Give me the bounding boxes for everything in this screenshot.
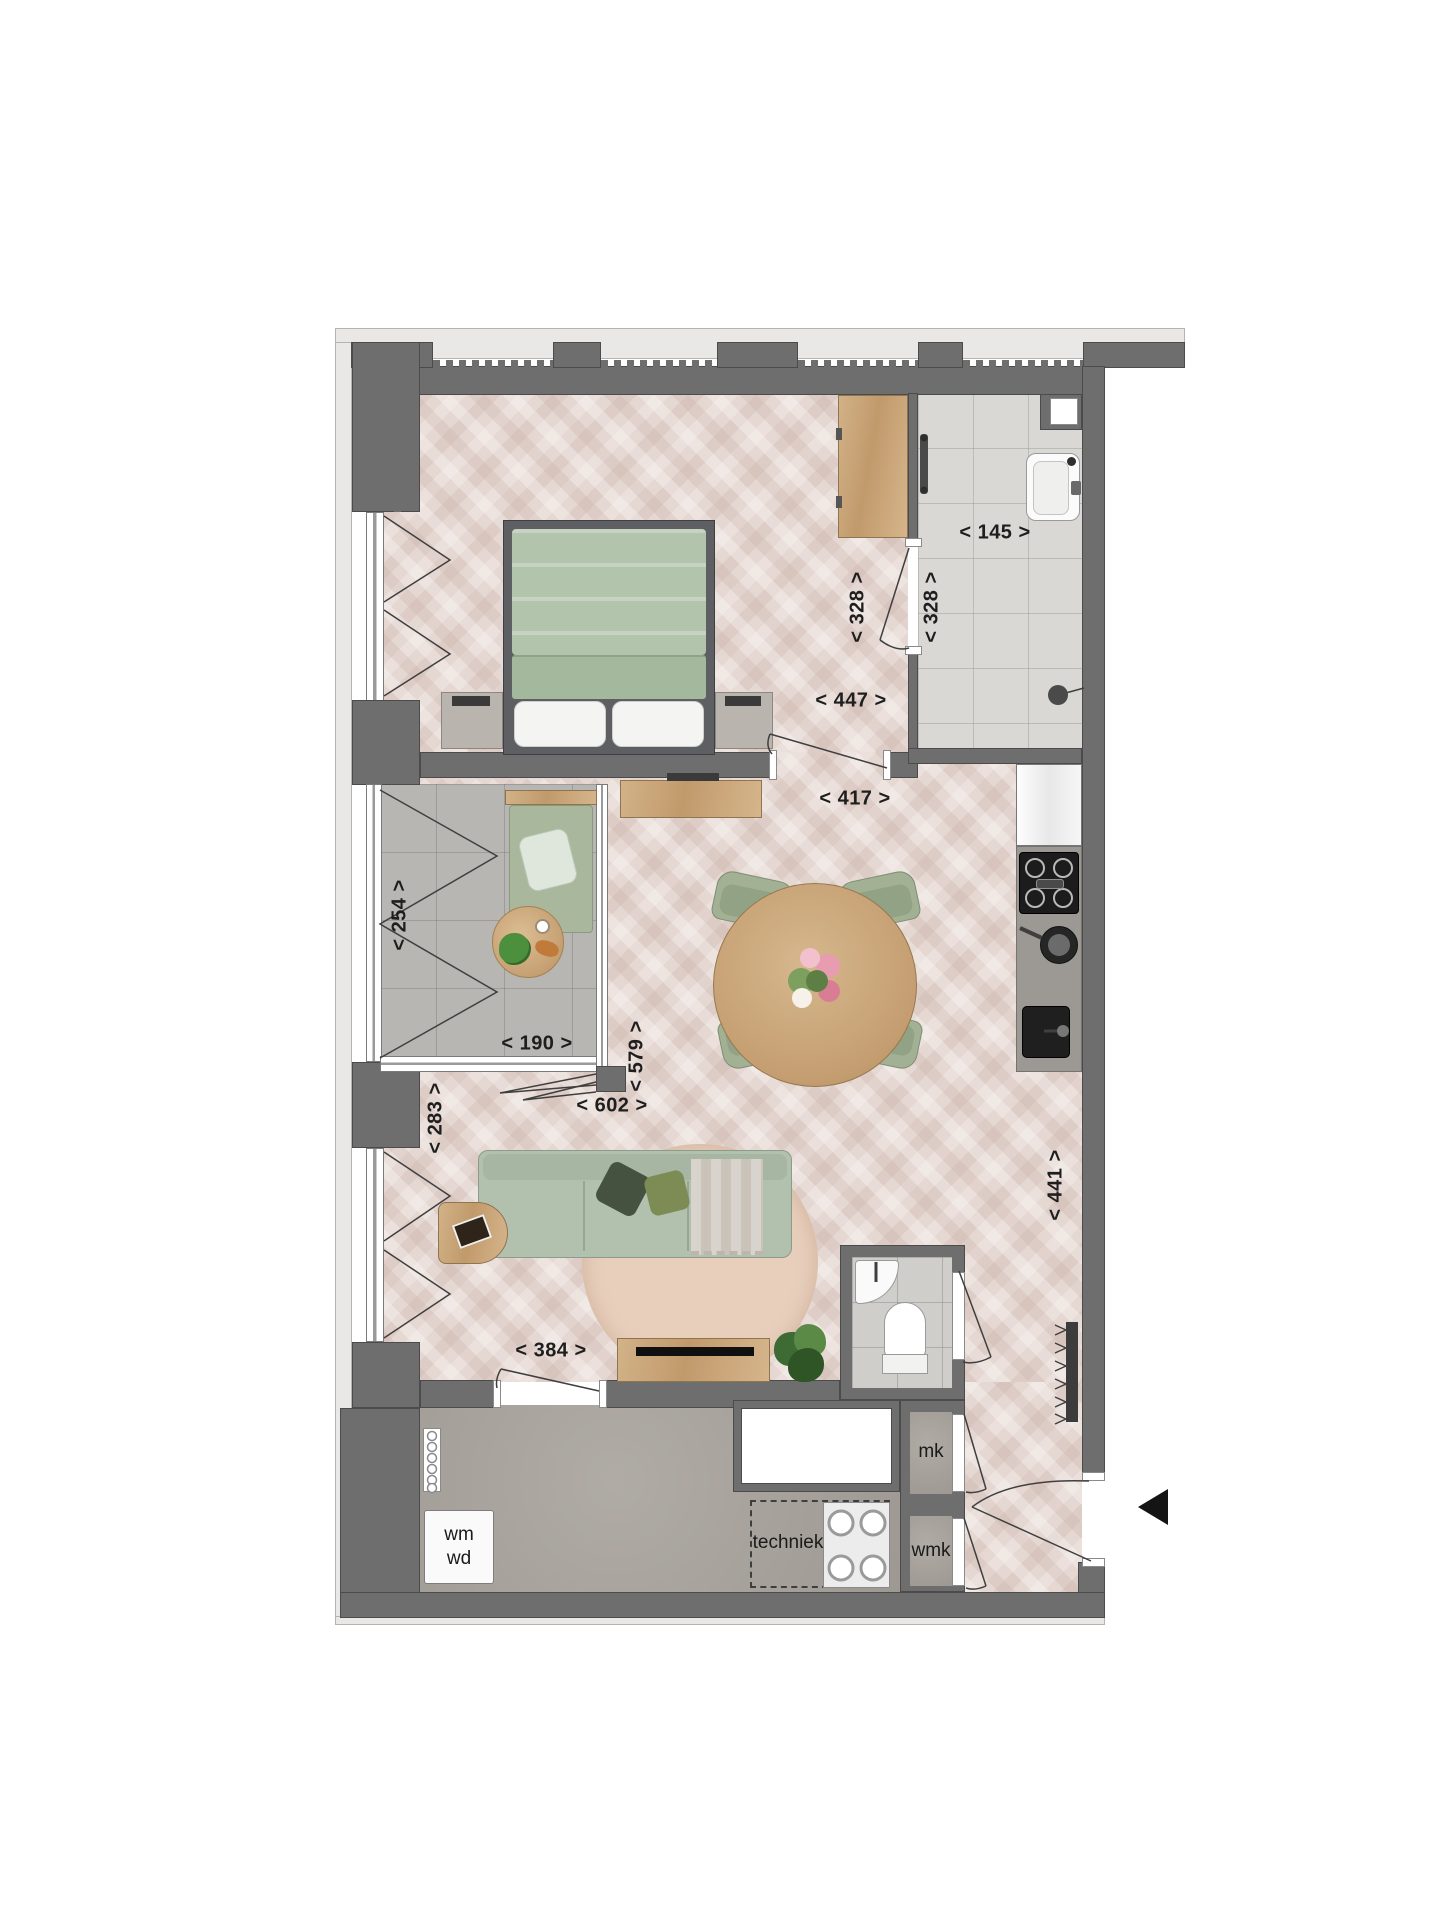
side-table [438, 1202, 508, 1264]
pan-inner [1048, 934, 1070, 956]
wall-corner-left-top [352, 342, 420, 512]
washer-dryer-unit: wm wd [424, 1510, 494, 1584]
door-jamb [905, 538, 922, 547]
nightstand [715, 692, 773, 749]
balcony-plant [499, 933, 529, 963]
sink-faucet [1071, 481, 1081, 495]
dim-145: < 145 > [959, 522, 1030, 545]
bedroom-window [366, 512, 384, 702]
dim-328-bathroom: < 328 > [921, 571, 944, 642]
wall-pier [918, 342, 963, 368]
insulation-teeth [433, 360, 553, 367]
wall-laundry-north [420, 1380, 497, 1408]
bed-pillow [514, 701, 606, 747]
flower [800, 948, 820, 968]
lounge-chair-headboard [505, 790, 597, 805]
wall-bathroom-west-upper [908, 393, 918, 545]
plant-leaves [788, 1348, 824, 1382]
dryer-label: wd [447, 1547, 471, 1571]
wall-right [1082, 366, 1105, 1478]
wardrobe [838, 395, 908, 538]
insulation-teeth [601, 360, 717, 367]
burner [1053, 888, 1073, 908]
wall-living-left-lower [352, 1342, 420, 1408]
wall-living-left-block [352, 1062, 420, 1148]
door-jamb [599, 1380, 607, 1408]
sofa-seam [583, 1181, 585, 1251]
bed-folded-blanket [512, 655, 706, 699]
entrance-door-jamb [1082, 1472, 1105, 1481]
door-jamb [493, 1380, 501, 1408]
toilet-bowl [884, 1302, 926, 1358]
wall-pier [553, 342, 601, 368]
door-jamb [883, 750, 891, 780]
dim-190: < 190 > [501, 1033, 572, 1056]
bed [503, 520, 715, 755]
sofa [478, 1150, 792, 1258]
coffee-cup [535, 919, 550, 934]
sofa-throw-blanket [691, 1159, 763, 1255]
wall-bathroom-west-lower [908, 648, 918, 754]
flower [806, 970, 828, 992]
insulation-teeth [798, 360, 918, 367]
doorbell-panel [423, 1428, 441, 1492]
insulation-teeth [344, 1412, 351, 1590]
dim-384: < 384 > [515, 1340, 586, 1363]
toilet-tank [882, 1354, 928, 1374]
nightstand-item [725, 696, 761, 706]
mk-label: mk [918, 1441, 943, 1463]
dim-254: < 254 > [389, 879, 412, 950]
book [452, 1214, 493, 1249]
wmk-door-opening [952, 1518, 965, 1586]
dim-447: < 447 > [815, 690, 886, 713]
reserved-zone [741, 1408, 892, 1484]
dim-602: < 602 > [576, 1095, 647, 1118]
mk-door-opening [952, 1414, 965, 1492]
frying-pan [1040, 926, 1078, 964]
floor-plan: wm wd [0, 0, 1440, 1920]
wall-bottom [340, 1592, 1105, 1618]
sink-drain-dot [1067, 457, 1076, 466]
potted-plant [772, 1324, 832, 1384]
towel-radiator [920, 434, 928, 494]
cooktop-control [1036, 879, 1064, 889]
cooktop [1019, 852, 1079, 914]
insulation-teeth [963, 360, 1083, 367]
wardrobe-handle [836, 496, 842, 508]
wall-bathroom-south [908, 748, 1082, 764]
croissant [533, 938, 560, 960]
nightstand-item [452, 696, 490, 706]
balcony-glass-partition [596, 784, 608, 1070]
burner [1025, 858, 1045, 878]
tv-cabinet [617, 1338, 770, 1382]
dim-283: < 283 > [425, 1082, 448, 1153]
bed-pillow [612, 701, 704, 747]
coat-rack [1066, 1322, 1078, 1422]
techniek-label: techniek [753, 1532, 824, 1554]
wall-balcony-left-block [352, 700, 420, 785]
heat-pump-unit [823, 1502, 890, 1588]
entry-corridor-floor [965, 1382, 1082, 1592]
wall-bedroom-south [420, 752, 773, 778]
dim-441: < 441 > [1045, 1149, 1068, 1220]
door-jamb [905, 646, 922, 655]
sideboard [620, 780, 762, 818]
burner [1025, 888, 1045, 908]
bed-duvet [512, 529, 706, 655]
bathroom-niche [1050, 398, 1078, 425]
toilet [882, 1302, 928, 1376]
wall-pier [717, 342, 798, 368]
balcony-corner-post [596, 1066, 626, 1092]
burner [1053, 858, 1073, 878]
flower-bouquet [782, 948, 852, 1018]
kitchen-sink [1022, 1006, 1070, 1058]
dim-579: < 579 > [626, 1020, 649, 1091]
dim-417: < 417 > [819, 788, 890, 811]
tv [636, 1347, 754, 1356]
flower [792, 988, 812, 1008]
sink-basin [1033, 461, 1069, 515]
wall-top [352, 366, 1105, 395]
entrance-arrow-icon [1138, 1489, 1168, 1525]
insulation-teeth [394, 430, 401, 512]
balcony-table [492, 906, 564, 978]
bathroom-sink [1026, 453, 1080, 521]
kitchen-tall-cabinet [1016, 764, 1082, 846]
sideboard-item [667, 773, 719, 781]
balcony-sliding-door [380, 1056, 600, 1072]
wmk-label: wmk [911, 1540, 950, 1562]
living-room-window [366, 1148, 384, 1342]
nightstand [441, 692, 503, 749]
washer-label: wm [444, 1523, 474, 1547]
wall-laundry-left [340, 1408, 420, 1596]
wardrobe-handle [836, 428, 842, 440]
balcony-window-left [366, 784, 382, 1062]
dim-328-bedroom: < 328 > [847, 571, 870, 642]
wc-door-opening [952, 1272, 965, 1360]
wall-pier [1083, 342, 1185, 368]
door-jamb [769, 750, 777, 780]
entrance-door-jamb [1082, 1558, 1105, 1567]
